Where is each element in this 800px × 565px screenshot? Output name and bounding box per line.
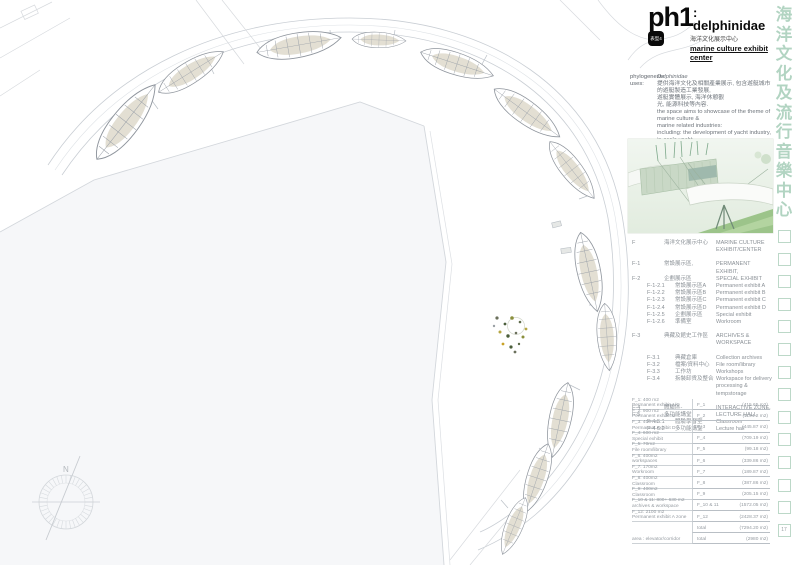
program-name-en: Special exhibit: [716, 312, 772, 319]
info-label: [630, 109, 657, 123]
area-code: F_1: [697, 403, 705, 409]
program-code: F-1: [632, 261, 664, 268]
info-line: the space aims to showcase of the theme …: [630, 109, 772, 123]
area-value: (387.86 m2): [742, 481, 768, 487]
area-value-cell: F_7 (189.87 m2): [692, 466, 770, 477]
info-label: [630, 95, 657, 102]
program-row: F-3.4 拆裝卸貨及整合 Workspace for delivery pro…: [632, 376, 772, 398]
side-title-char: 海: [776, 6, 793, 26]
area-table: F_1: 400 m2 Permanent exhibit A/C F_1 (4…: [632, 399, 770, 544]
decorative-square: [778, 388, 791, 401]
program-name-zh: 企劃展示區: [664, 276, 716, 283]
program-name-zh: 拆裝卸貨及整合: [675, 376, 716, 383]
area-code: F_8: [697, 481, 705, 487]
area-code: total: [697, 526, 706, 532]
area-value-cell: F_6 (339.86 m2): [692, 455, 770, 466]
info-line: phylogenesis: Delphinidae: [630, 74, 772, 81]
side-title-char: 行: [776, 123, 793, 143]
decorative-square: [778, 366, 791, 379]
program-row: F-1-2.3 常設展示區C Permanent exhibit C: [632, 297, 772, 304]
area-code: F_5: [697, 447, 705, 453]
program-name-en: Workshops: [716, 369, 772, 376]
program-row: F-1-2.4 常設展示區D Permanent exhibit D: [632, 305, 772, 312]
project-code: ph1: [648, 6, 693, 28]
page-number: 17: [778, 524, 791, 537]
info-line: marine related industries:: [630, 123, 772, 130]
program-code: F-1-2.4: [647, 305, 675, 312]
side-title-column: 海洋文化及流行音樂中心17: [771, 6, 797, 537]
area-value: (339.86 m2): [742, 459, 768, 465]
program-row: F 海洋文化展示中心 MARINE CULTURE EXHIBIT/CENTER: [632, 240, 772, 254]
area-code: F_6: [697, 459, 705, 465]
area-row: area : elevator/corridor total (2980 m2): [632, 533, 770, 544]
area-label-line2: Permanent exhibit A zone: [632, 515, 692, 521]
info-label: [630, 102, 657, 109]
program-name-en: Permanent exhibit A: [716, 283, 772, 290]
area-value: (709.19 m2): [742, 436, 768, 442]
compass-north-label: N: [63, 465, 69, 474]
info-text: 提供海洋文化及相關產業展示, 包含遊艇城市的遊艇製造工業發展,: [657, 81, 772, 95]
area-code: F_9: [697, 492, 705, 498]
decorative-square: [778, 275, 791, 288]
decorative-square: [778, 456, 791, 469]
area-label-line2: Workroom: [632, 470, 692, 476]
area-value: (2428.37 m2): [739, 515, 768, 521]
program-code: F-3.1: [647, 355, 675, 362]
program-name-zh: 企劃展示區: [675, 312, 716, 319]
area-value: (2980 m2): [746, 537, 768, 543]
program-name-en: Collection archives: [716, 355, 772, 362]
program-code: F: [632, 240, 664, 247]
area-value: (7294.20 m2): [739, 526, 768, 532]
project-subtitle-zh: 海洋文化展示中心: [690, 34, 772, 43]
project-subtitle-en: marine culture exhibit center: [690, 44, 772, 62]
right-panel: ph1 表型4 : delphinidae 海洋文化展示中心 marine cu…: [626, 0, 772, 565]
decorative-square: [778, 433, 791, 446]
area-label-line2: File room/library: [632, 448, 692, 454]
area-label-line2: archives & workspace: [632, 504, 692, 510]
phase-tag-badge: 表型4: [648, 31, 664, 46]
program-name-en: ARCHIVES & WORKSPACE: [716, 333, 772, 347]
info-label: uses:: [630, 81, 657, 95]
area-code: F_4: [697, 436, 705, 442]
program-name-zh: 海洋文化展示中心: [664, 240, 716, 247]
side-title-char: 化: [776, 65, 793, 85]
program-row: F-3 典藏及館史工作區 ARCHIVES & WORKSPACE: [632, 333, 772, 347]
side-title-char: 中: [776, 182, 793, 202]
program-code: F-1-2.5: [647, 312, 675, 319]
program-code: F-1-2.3: [647, 297, 675, 304]
area-value-cell: F_5 (99.18 m2): [692, 444, 770, 455]
program-code: F-3.2: [647, 362, 675, 369]
area-code: F_2: [697, 414, 705, 420]
program-name-zh: 典藏及館史工作區: [664, 333, 716, 340]
program-name-en: Permanent exhibit B: [716, 290, 772, 297]
presentation-board: N ph1 表型4 : delphinidae 海洋文化展示中心 marine …: [0, 0, 800, 565]
program-name-en: Permanent exhibit C: [716, 297, 772, 304]
area-label: F_12: 2100 m2 Permanent exhibit A zone: [632, 511, 692, 522]
area-row: total (7294.20 m2): [632, 522, 770, 533]
program-code: F-1-2.2: [647, 290, 675, 297]
project-title: : delphinidae: [690, 6, 772, 32]
rendering-image: [628, 139, 773, 233]
area-label-line1: area : elevator/corridor: [632, 537, 692, 543]
side-title-char: 文: [776, 45, 793, 65]
program-code: F-1-2.1: [647, 283, 675, 290]
info-text: marine related industries:: [657, 123, 772, 130]
area-value: (205.15 m2): [742, 492, 768, 498]
info-text: 遊艇實體展示, 海洋休憩觀: [657, 95, 772, 102]
area-value-cell: F_9 (205.15 m2): [692, 489, 770, 500]
program-name-en: File room/library: [716, 362, 772, 369]
program-name-en: Workroom: [716, 319, 772, 326]
area-label-line2: Permanent exhibit A/C: [632, 403, 692, 409]
info-label: [630, 123, 657, 130]
decorative-square: [778, 320, 791, 333]
decorative-square: [778, 411, 791, 424]
area-code: total: [697, 537, 706, 543]
program-name-zh: 檔案/資料中心: [675, 362, 716, 369]
program-name-zh: 常設展示區D: [675, 305, 716, 312]
program-name-en: Permanent exhibit D: [716, 305, 772, 312]
side-title-char: 音: [776, 143, 793, 163]
info-text: the space aims to showcase of the theme …: [657, 109, 772, 123]
area-value: (189.87 m2): [742, 470, 768, 476]
program-code: F-3.3: [647, 369, 675, 376]
program-name-zh: 典藏倉庫: [675, 355, 716, 362]
side-title-char: 流: [776, 104, 793, 124]
program-code: F-3.4: [647, 376, 675, 383]
program-row: F-1-2.6 準備室 Workroom: [632, 319, 772, 326]
area-code: F_12: [697, 515, 708, 521]
side-title-char: 及: [776, 84, 793, 104]
area-value-cell: F_12 (2428.37 m2): [692, 511, 770, 522]
program-name-zh: 準備室: [675, 319, 716, 326]
area-value: (415.65 m2): [742, 403, 768, 409]
program-row: F-3.1 典藏倉庫 Collection archives: [632, 355, 772, 362]
rendering-thumbnail: [628, 139, 773, 233]
area-value-cell: F_3 (445.87 m2): [692, 421, 770, 432]
program-name-en: Workspace for delivery processing & temp…: [716, 376, 772, 398]
program-row: F-1-2.5 企劃展示區 Special exhibit: [632, 312, 772, 319]
area-value-cell: total (2980 m2): [692, 533, 770, 544]
program-code: F-1-2.6: [647, 319, 675, 326]
decorative-square: [778, 253, 791, 266]
area-code: F_10 & 11: [697, 503, 719, 509]
info-text: Delphinidae: [657, 74, 772, 81]
title-block: ph1 表型4 : delphinidae 海洋文化展示中心 marine cu…: [648, 6, 772, 62]
water-basin: [0, 102, 452, 565]
decorative-square: [778, 479, 791, 492]
side-title-char: 洋: [776, 26, 793, 46]
area-value: (445.87 m2): [742, 425, 768, 431]
area-code: F_3: [697, 425, 705, 431]
area-value-cell: F_4 (709.19 m2): [692, 433, 770, 444]
side-title-char: 心: [776, 201, 793, 221]
side-title-char: 樂: [776, 162, 793, 182]
program-row: F-2 企劃展示區 SPECIAL EXHIBIT: [632, 276, 772, 283]
area-row: F_12: 2100 m2 Permanent exhibit A zone F…: [632, 511, 770, 522]
area-value: (1572.05 m2): [739, 503, 768, 509]
planting-dots: [493, 316, 528, 353]
decorative-square: [778, 343, 791, 356]
info-line: uses: 提供海洋文化及相關產業展示, 包含遊艇城市的遊艇製造工業發展,: [630, 81, 772, 95]
program-code: F-3: [632, 333, 664, 340]
area-value-cell: F_2 (1194.2 m2): [692, 410, 770, 421]
area-value: (1194.2 m2): [742, 414, 768, 420]
program-name-zh: 常設展示區C: [675, 297, 716, 304]
area-label: area : elevator/corridor: [632, 533, 692, 544]
program-name-en: SPECIAL EXHIBIT: [716, 276, 772, 283]
area-value: (99.18 m2): [745, 447, 768, 453]
area-value-cell: F_1 (415.65 m2): [692, 399, 770, 410]
area-value-cell: F_10 & 11 (1572.05 m2): [692, 500, 770, 511]
decorative-square: [778, 298, 791, 311]
area-code: F_7: [697, 470, 705, 476]
decorative-square: [778, 501, 791, 514]
program-row: F-1 常設展示區, PERMANENT EXHIBIT,: [632, 261, 772, 275]
area-label-line2: workspaces: [632, 459, 692, 465]
program-row: F-3.2 檔案/資料中心 File room/library: [632, 362, 772, 369]
info-line: 遊艇實體展示, 海洋休憩觀: [630, 95, 772, 102]
program-name-en: MARINE CULTURE EXHIBIT/CENTER: [716, 240, 772, 254]
info-line: 光, 能源科技等內容.: [630, 102, 772, 109]
program-name-en: PERMANENT EXHIBIT,: [716, 261, 772, 275]
area-value-cell: F_8 (387.86 m2): [692, 477, 770, 488]
info-text: 光, 能源科技等內容.: [657, 102, 772, 109]
program-name-zh: 常設展示區,: [664, 261, 716, 268]
area-label: [632, 522, 692, 533]
info-label: phylogenesis:: [630, 74, 657, 81]
program-code: F-2: [632, 276, 664, 283]
area-value-cell: total (7294.20 m2): [692, 522, 770, 533]
decorative-square: [778, 230, 791, 243]
